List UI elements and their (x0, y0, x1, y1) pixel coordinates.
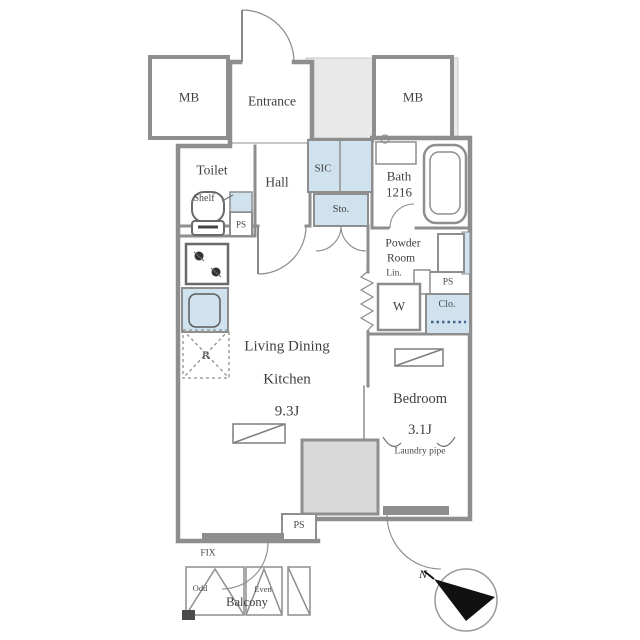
label-linen: Lin. (386, 269, 402, 279)
label-ldk-ps: PS (293, 521, 304, 531)
label-bath-size: 1216 (386, 186, 412, 199)
label-ldk-line2: Kitchen (263, 373, 310, 388)
label-panel-even: Even (254, 585, 271, 594)
label-fix: FIX (200, 549, 215, 559)
label-toilet-ps: PS (236, 221, 246, 230)
label-powder-ps: PS (443, 278, 454, 288)
label-fridge: R (202, 349, 210, 361)
label-ldk-size: 9.3J (275, 405, 300, 420)
bedroom-window (383, 506, 449, 515)
label-bath: Bath (387, 170, 412, 183)
label-storage: Sto. (333, 205, 350, 216)
label-powder-1: Powder (385, 238, 420, 250)
stove-icon (186, 244, 228, 284)
label-bedroom: Bedroom (393, 392, 447, 407)
label-hall: Hall (265, 175, 288, 189)
balcony-drain (182, 610, 195, 620)
label-toilet: Toilet (196, 163, 227, 177)
compass-north-label: N (418, 567, 428, 581)
label-closet: Clo. (439, 300, 456, 310)
label-mb-left: MB (179, 91, 199, 104)
toilet-shelf (230, 192, 252, 212)
floor-plan-drawing: N (0, 0, 640, 640)
label-toilet-shelf: Shelf (193, 194, 214, 204)
label-ldk-line1: Living Dining (244, 340, 329, 355)
label-mb-right: MB (403, 91, 423, 104)
structural-column (302, 440, 378, 514)
label-laundry-pipe: Laundry pipe (395, 447, 446, 457)
label-powder-2: Room (387, 253, 415, 265)
label-panel-odd: Odd (193, 584, 208, 593)
bedroom-terrace-door-arc (387, 515, 441, 569)
label-entrance: Entrance (248, 94, 296, 108)
label-balcony: Balcony (226, 596, 268, 609)
fix-window (202, 533, 284, 542)
label-washer: W (393, 300, 405, 313)
label-sic: SIC (314, 164, 331, 175)
label-bedroom-size: 3.1J (408, 423, 432, 438)
floor-plan: N MB MB Entrance Toilet Shelf PS Hall SI… (0, 0, 640, 640)
compass-icon: N (418, 567, 497, 631)
vanity-sink-icon (438, 234, 464, 272)
entrance-door-arc (242, 10, 294, 62)
